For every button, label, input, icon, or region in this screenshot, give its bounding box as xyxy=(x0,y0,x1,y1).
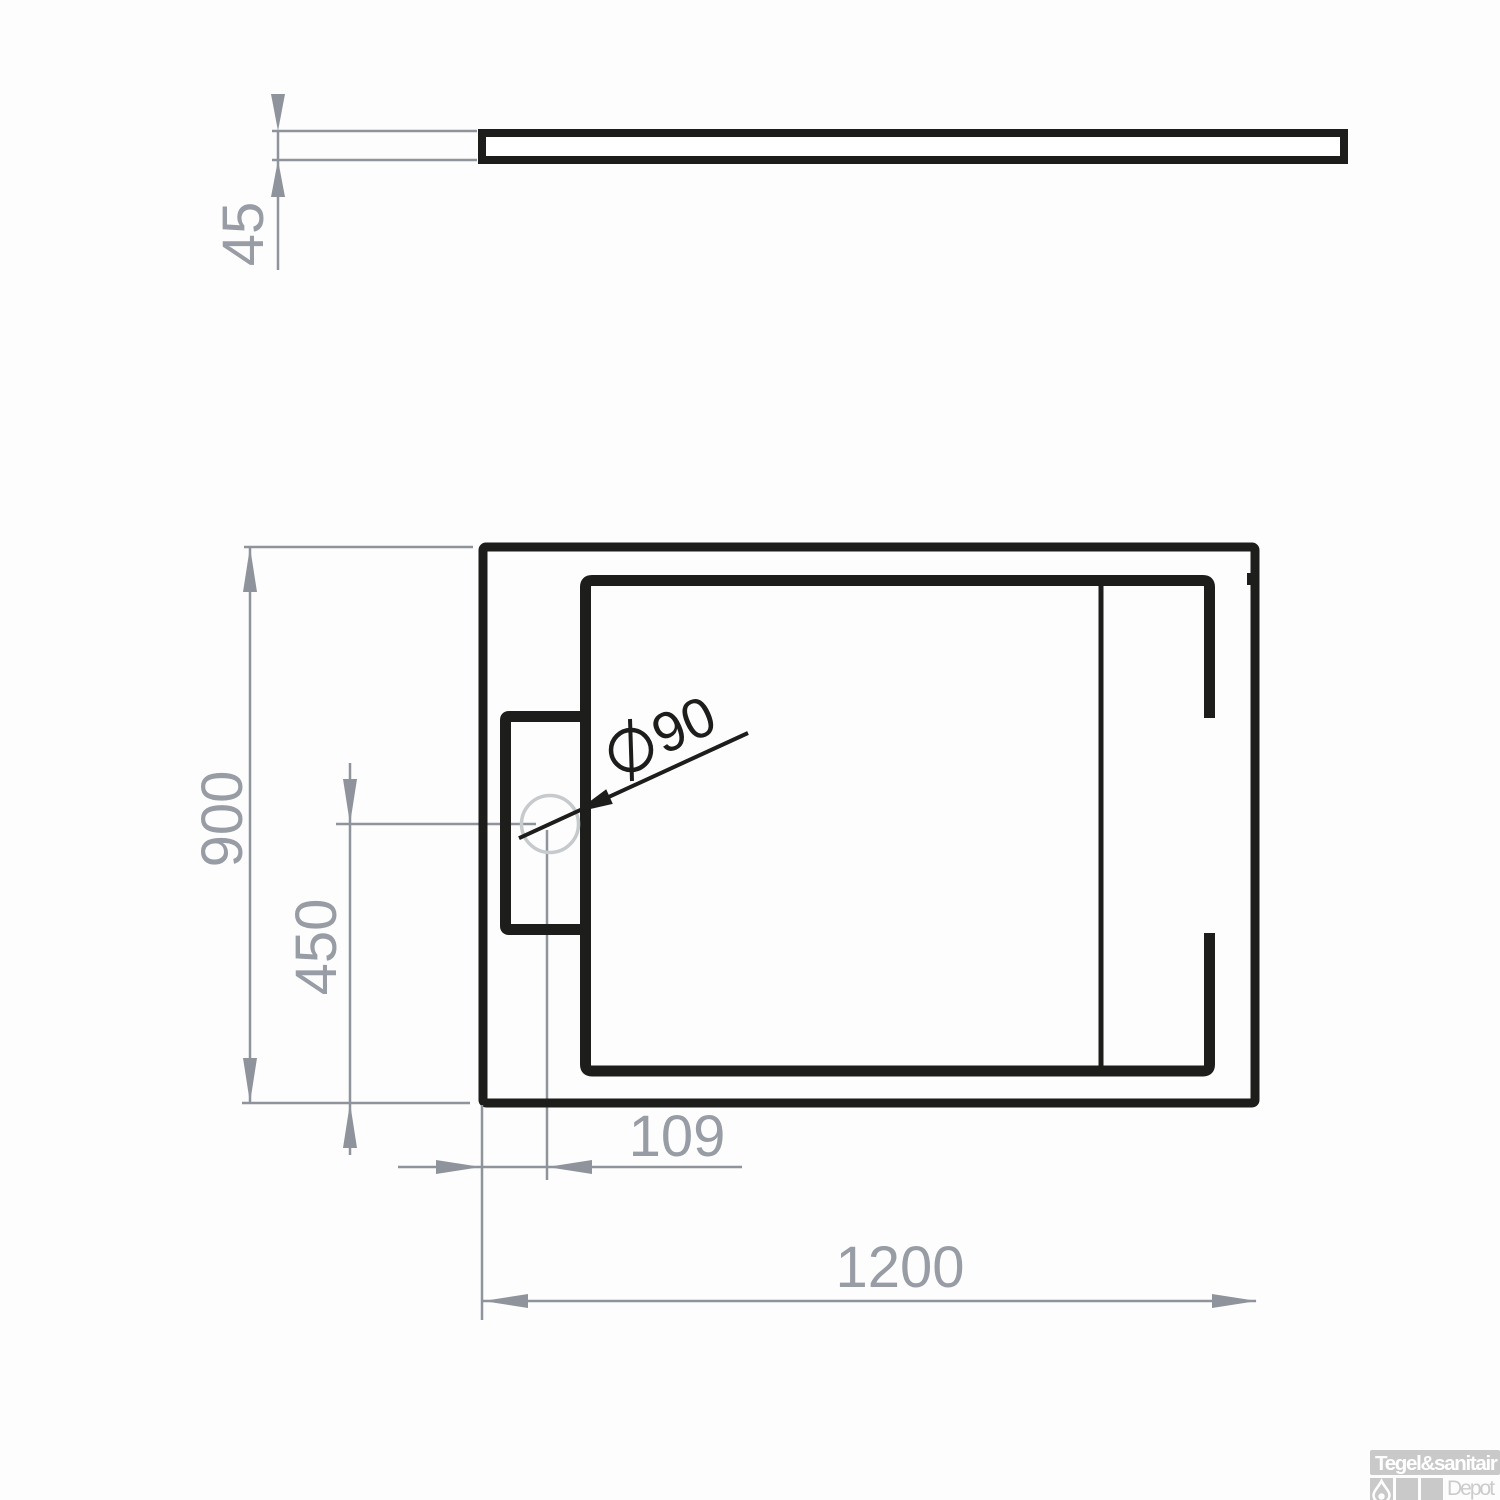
svg-text:1200: 1200 xyxy=(835,1235,964,1300)
svg-text:Tegel&sanitair: Tegel&sanitair xyxy=(1375,1452,1498,1475)
svg-text:900: 900 xyxy=(190,771,255,868)
svg-text:450: 450 xyxy=(284,899,349,996)
svg-text:45: 45 xyxy=(211,202,276,267)
svg-text:Depot: Depot xyxy=(1447,1477,1495,1500)
svg-text:109: 109 xyxy=(629,1104,726,1169)
